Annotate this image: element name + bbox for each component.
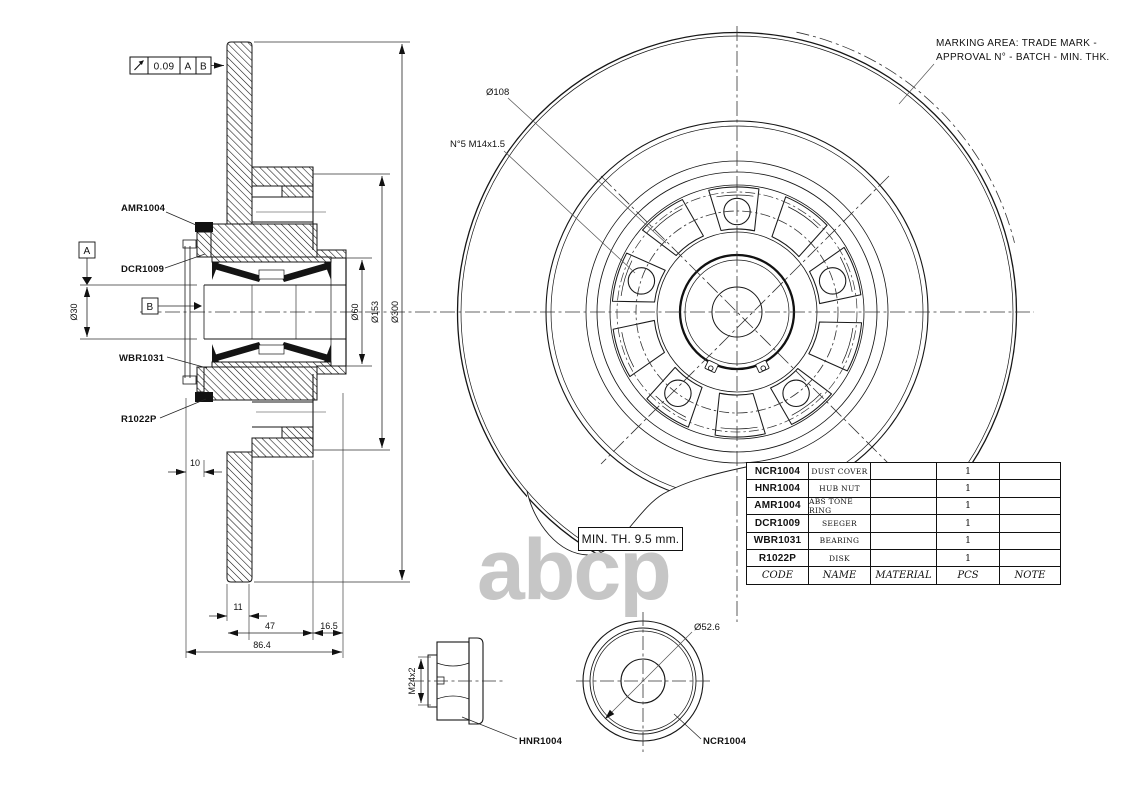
bom-note [1000,550,1060,566]
hub-flange-section-top [204,224,317,257]
friction-band-section-bottom [227,452,252,582]
table-row: WBR1031 BEARING 1 [747,532,1060,549]
runout-tolerance-frame: 0.09 A B [130,57,224,74]
svg-text:A: A [84,246,91,257]
bom-material [871,480,937,496]
label-dcr1009: DCR1009 [121,264,164,275]
bom-material [871,533,937,549]
bom-note [1000,533,1060,549]
table-row: DCR1009 SEEGER 1 [747,514,1060,531]
svg-text:B: B [147,302,154,313]
bom-material [871,515,937,531]
bom-name: SEEGER [809,515,871,531]
bom-pcs: 1 [937,550,1000,566]
bom-name: DISK [809,550,871,566]
technical-drawing-brake-disc: 0.09 A B A B [0,0,1131,800]
hub-nut-view: HNR1004 [410,638,563,747]
bom-header-pcs: PCS [937,567,1000,583]
bom-material [871,498,937,514]
hub-flange-section-bottom [204,367,317,400]
tolerance-datum-a: A [185,62,192,73]
table-row: AMR1004 ABS TONE RING 1 [747,497,1060,514]
bom-code: DCR1009 [747,515,809,531]
bom-header-material: MATERIAL [871,567,937,583]
bom-material [871,550,937,566]
bom-code: NCR1004 [747,463,809,479]
bom-pcs: 1 [937,463,1000,479]
bom-pcs: 1 [937,480,1000,496]
dim-86-4: 86.4 [253,640,271,650]
table-row: R1022P DISK 1 [747,549,1060,566]
bom-note [1000,463,1060,479]
bom-header-note: NOTE [1000,567,1060,583]
friction-band-section-top [227,42,252,252]
label-ncr1004: NCR1004 [703,736,747,747]
tolerance-datum-b: B [200,62,207,73]
dim-d300: Ø300 [390,301,400,323]
label-r1022p: R1022P [121,414,157,425]
min-thickness-note: MIN. TH. 9.5 mm. [578,527,683,551]
table-row: NCR1004 DUST COVER 1 [747,463,1060,479]
drawing-sheet: 0.09 A B A B [0,0,1131,800]
bom-name: ABS TONE RING [809,498,871,514]
bom-note [1000,498,1060,514]
bom-pcs: 1 [937,498,1000,514]
bom-table: NCR1004 DUST COVER 1 HNR1004 HUB NUT 1 A… [746,462,1061,585]
dim-bolt-thread: N°5 M14x1.5 [450,139,505,150]
dim-11: 11 [233,602,242,612]
dust-cover-view: Ø52.6 NCR1004 [576,612,747,752]
bom-pcs: 1 [937,533,1000,549]
bom-name: DUST COVER [809,463,871,479]
bom-code: WBR1031 [747,533,809,549]
label-hnr1004: HNR1004 [519,736,563,747]
tone-ring-top [195,222,213,232]
bom-note [1000,480,1060,496]
label-wbr1031: WBR1031 [119,353,165,364]
dim-16-5: 16.5 [320,621,338,631]
dim-d153: Ø153 [370,301,380,323]
tolerance-value: 0.09 [154,62,175,73]
tone-ring-bottom [195,392,213,402]
bom-code: HNR1004 [747,480,809,496]
table-row: HNR1004 HUB NUT 1 [747,479,1060,496]
dim-d108: Ø108 [486,87,509,98]
table-header-row: CODE NAME MATERIAL PCS NOTE [747,566,1060,583]
marking-note-line1: MARKING AREA: TRADE MARK - [936,38,1097,49]
bom-pcs: 1 [937,515,1000,531]
bom-name: HUB NUT [809,480,871,496]
dim-47: 47 [265,621,275,631]
bom-code: AMR1004 [747,498,809,514]
marking-area-arc [797,32,1015,243]
dim-d60: Ø60 [350,303,360,320]
dim-10: 10 [190,458,200,468]
label-amr1004: AMR1004 [121,203,166,214]
bom-material [871,463,937,479]
marking-note-line2: APPROVAL N° - BATCH - MIN. THK. [936,52,1110,63]
bom-header-name: NAME [809,567,871,583]
dim-d52-6: Ø52.6 [694,622,720,633]
datum-a: A [79,242,95,285]
dim-d30: Ø30 [69,303,79,320]
bom-header-code: CODE [747,567,809,583]
bom-note [1000,515,1060,531]
bom-name: BEARING [809,533,871,549]
bom-code: R1022P [747,550,809,566]
